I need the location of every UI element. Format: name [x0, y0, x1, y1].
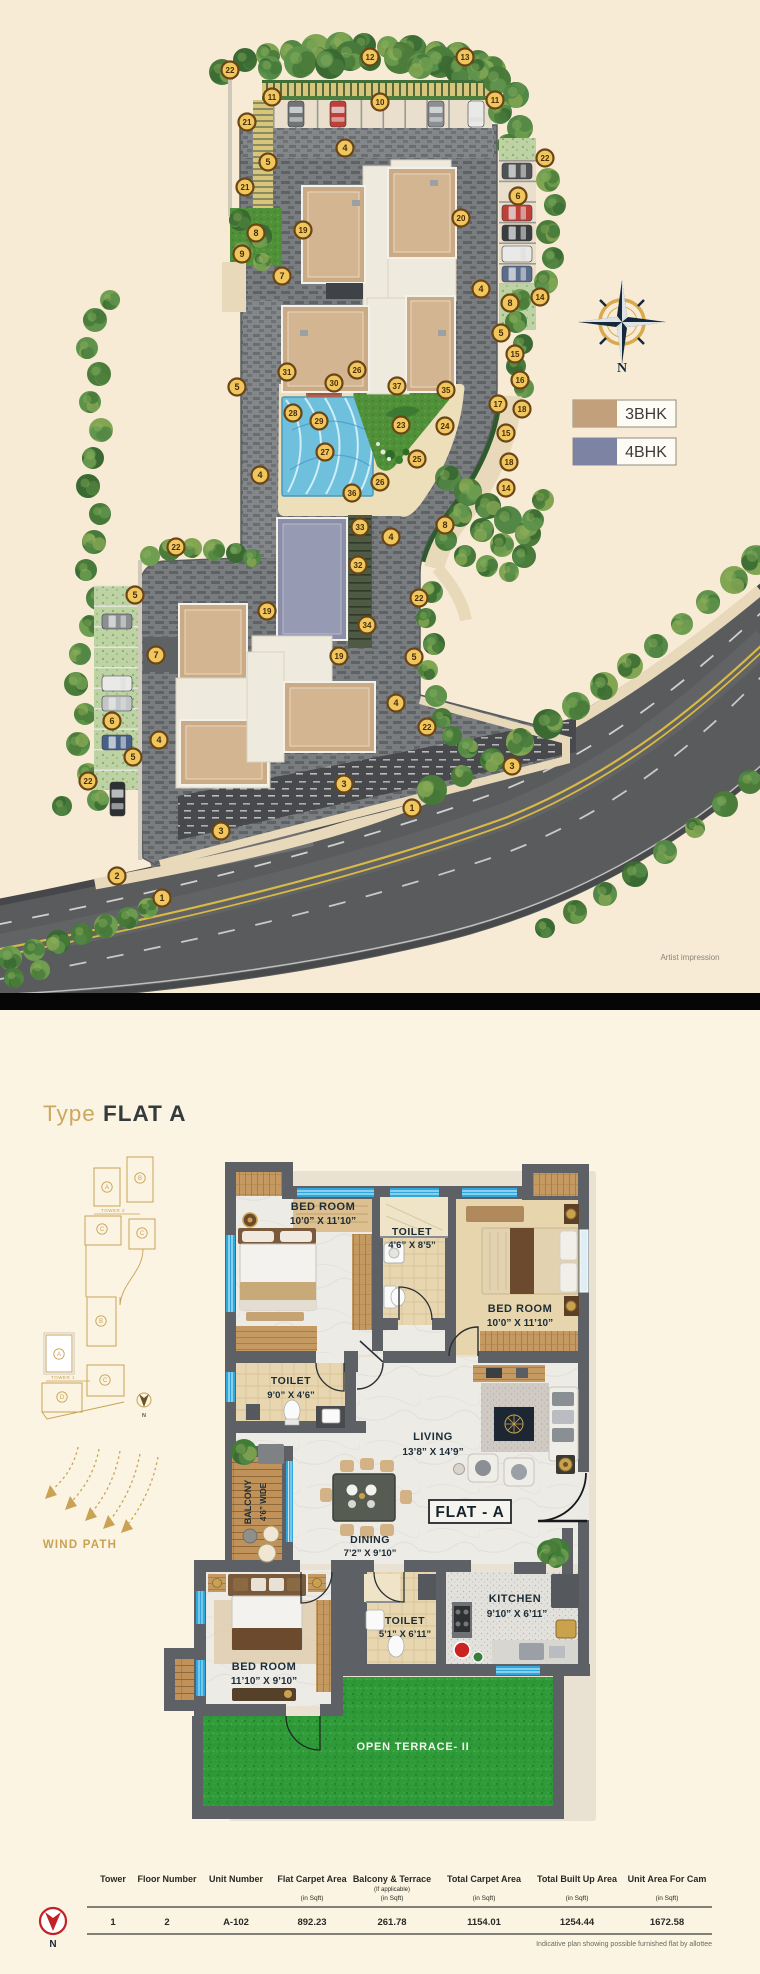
- svg-text:19: 19: [299, 226, 308, 235]
- svg-text:TOILET: TOILET: [385, 1615, 425, 1627]
- svg-text:3BHK: 3BHK: [625, 406, 667, 423]
- svg-text:15: 15: [511, 350, 520, 359]
- svg-text:Tower: Tower: [100, 1874, 126, 1884]
- svg-text:7’2” X 9’10”: 7’2” X 9’10”: [344, 1548, 397, 1559]
- svg-text:TOWER 1: TOWER 1: [51, 1375, 75, 1380]
- svg-text:4’6” WIDE: 4’6” WIDE: [259, 1482, 268, 1521]
- svg-text:4: 4: [478, 284, 483, 294]
- svg-text:4: 4: [393, 698, 398, 708]
- svg-text:16: 16: [516, 376, 525, 385]
- svg-text:18: 18: [518, 405, 527, 414]
- svg-text:28: 28: [289, 409, 298, 418]
- svg-text:1: 1: [110, 1917, 116, 1928]
- svg-text:33: 33: [356, 523, 365, 532]
- svg-text:3: 3: [218, 826, 223, 836]
- svg-text:9: 9: [239, 249, 244, 259]
- svg-text:Indicative plan showing possib: Indicative plan showing possible furnish…: [536, 1941, 712, 1948]
- svg-text:22: 22: [84, 777, 93, 786]
- svg-text:10’0” X 11’10”: 10’0” X 11’10”: [487, 1318, 553, 1329]
- svg-text:31: 31: [283, 368, 292, 377]
- svg-text:24: 24: [441, 422, 450, 431]
- svg-text:5: 5: [234, 382, 239, 392]
- svg-text:4: 4: [156, 735, 161, 745]
- svg-text:10’0” X 11’10”: 10’0” X 11’10”: [290, 1216, 356, 1227]
- svg-text:N: N: [617, 361, 627, 376]
- svg-text:7: 7: [279, 271, 284, 281]
- svg-text:8: 8: [253, 228, 258, 238]
- svg-text:22: 22: [541, 154, 550, 163]
- svg-text:12: 12: [366, 53, 375, 62]
- svg-text:BED ROOM: BED ROOM: [232, 1661, 297, 1673]
- svg-text:(If applicable): (If applicable): [374, 1887, 410, 1893]
- svg-text:C: C: [140, 1231, 145, 1237]
- svg-text:(in Sqft): (in Sqft): [381, 1895, 404, 1902]
- svg-text:N: N: [142, 1413, 146, 1419]
- svg-text:D: D: [60, 1395, 65, 1401]
- svg-text:BED ROOM: BED ROOM: [488, 1303, 553, 1315]
- svg-text:4: 4: [388, 532, 393, 542]
- svg-text:1154.01: 1154.01: [467, 1917, 502, 1928]
- svg-text:11’10” X 9’10”: 11’10” X 9’10”: [231, 1676, 297, 1687]
- svg-text:4BHK: 4BHK: [625, 444, 667, 461]
- svg-text:2: 2: [164, 1917, 169, 1928]
- svg-text:13’8” X 14’9”: 13’8” X 14’9”: [402, 1447, 463, 1458]
- svg-text:FLAT - A: FLAT - A: [435, 1504, 504, 1521]
- svg-text:32: 32: [354, 561, 363, 570]
- svg-text:1: 1: [409, 803, 414, 813]
- svg-text:5: 5: [132, 590, 137, 600]
- svg-text:9’10” X 6’11”: 9’10” X 6’11”: [487, 1609, 548, 1620]
- svg-text:TOILET: TOILET: [271, 1375, 311, 1387]
- svg-text:Floor Number: Floor Number: [137, 1874, 196, 1884]
- svg-text:15: 15: [502, 429, 511, 438]
- svg-text:Unit Area For Cam: Unit Area For Cam: [628, 1874, 707, 1884]
- svg-text:N: N: [49, 1939, 56, 1950]
- svg-text:25: 25: [413, 455, 422, 464]
- svg-text:C: C: [103, 1378, 108, 1384]
- svg-text:1: 1: [159, 893, 164, 903]
- svg-text:5: 5: [498, 328, 503, 338]
- svg-text:7: 7: [153, 650, 158, 660]
- svg-text:20: 20: [457, 214, 466, 223]
- svg-text:19: 19: [335, 652, 344, 661]
- svg-text:10: 10: [376, 98, 385, 107]
- svg-text:Type FLAT A: Type FLAT A: [43, 1101, 187, 1126]
- svg-text:27: 27: [321, 448, 330, 457]
- svg-text:Total Carpet Area: Total Carpet Area: [447, 1874, 522, 1884]
- svg-text:(in Sqft): (in Sqft): [656, 1895, 679, 1902]
- svg-text:B: B: [99, 1319, 103, 1325]
- svg-text:37: 37: [393, 382, 402, 391]
- svg-text:TOWER 2: TOWER 2: [101, 1208, 125, 1213]
- svg-text:30: 30: [330, 379, 339, 388]
- svg-text:8: 8: [507, 298, 512, 308]
- svg-text:(in Sqft): (in Sqft): [566, 1895, 589, 1902]
- svg-text:Flat Carpet Area: Flat Carpet Area: [277, 1874, 347, 1884]
- svg-text:29: 29: [315, 417, 324, 426]
- svg-text:892.23: 892.23: [297, 1917, 326, 1928]
- svg-text:4: 4: [342, 143, 347, 153]
- svg-text:17: 17: [494, 400, 503, 409]
- svg-text:35: 35: [442, 386, 451, 395]
- svg-text:21: 21: [241, 183, 250, 192]
- svg-text:34: 34: [363, 621, 372, 630]
- svg-text:5: 5: [265, 157, 270, 167]
- svg-text:A: A: [105, 1185, 109, 1191]
- svg-text:8: 8: [442, 520, 447, 530]
- svg-text:1254.44: 1254.44: [560, 1917, 595, 1928]
- svg-text:A: A: [57, 1352, 61, 1358]
- svg-text:4: 4: [257, 470, 262, 480]
- svg-text:Artist impression: Artist impression: [660, 953, 719, 962]
- svg-text:9’0” X 4’6”: 9’0” X 4’6”: [267, 1390, 315, 1401]
- svg-text:22: 22: [423, 723, 432, 732]
- svg-text:2: 2: [114, 871, 119, 881]
- svg-text:11: 11: [268, 93, 277, 102]
- svg-text:BALCONY: BALCONY: [243, 1480, 253, 1525]
- svg-text:36: 36: [348, 489, 357, 498]
- svg-text:3: 3: [341, 779, 346, 789]
- svg-text:5: 5: [411, 652, 416, 662]
- svg-text:19: 19: [263, 607, 272, 616]
- svg-text:Balcony & Terrace: Balcony & Terrace: [353, 1874, 431, 1884]
- svg-text:C: C: [100, 1227, 105, 1233]
- svg-text:B: B: [138, 1176, 142, 1182]
- svg-text:DINING: DINING: [350, 1534, 390, 1546]
- svg-text:22: 22: [415, 594, 424, 603]
- svg-text:18: 18: [505, 458, 514, 467]
- svg-text:TOILET: TOILET: [392, 1226, 432, 1238]
- svg-text:26: 26: [376, 478, 385, 487]
- svg-text:22: 22: [172, 543, 181, 552]
- svg-text:WIND PATH: WIND PATH: [43, 1539, 117, 1551]
- svg-text:5’1” X 6’11”: 5’1” X 6’11”: [379, 1629, 432, 1640]
- svg-text:BED ROOM: BED ROOM: [291, 1201, 356, 1213]
- svg-text:OPEN TERRACE- II: OPEN TERRACE- II: [356, 1741, 469, 1753]
- svg-text:5: 5: [130, 752, 135, 762]
- svg-text:(in Sqft): (in Sqft): [473, 1895, 496, 1902]
- svg-text:Unit Number: Unit Number: [209, 1874, 263, 1884]
- svg-text:(in Sqft): (in Sqft): [301, 1895, 324, 1902]
- svg-text:4’6” X 8’5”: 4’6” X 8’5”: [388, 1240, 436, 1251]
- svg-text:A-102: A-102: [223, 1917, 249, 1928]
- svg-text:LIVING: LIVING: [413, 1431, 453, 1443]
- svg-text:13: 13: [461, 53, 470, 62]
- svg-text:11: 11: [491, 96, 500, 105]
- svg-text:KITCHEN: KITCHEN: [489, 1593, 541, 1605]
- svg-text:6: 6: [515, 191, 520, 201]
- svg-text:14: 14: [536, 293, 545, 302]
- svg-text:261.78: 261.78: [377, 1917, 406, 1928]
- svg-text:Total Built Up Area: Total Built Up Area: [537, 1874, 618, 1884]
- svg-text:26: 26: [353, 366, 362, 375]
- svg-text:21: 21: [243, 118, 252, 127]
- svg-text:3: 3: [509, 761, 514, 771]
- svg-text:1672.58: 1672.58: [650, 1917, 684, 1928]
- svg-text:6: 6: [109, 716, 114, 726]
- svg-text:14: 14: [502, 484, 511, 493]
- svg-text:23: 23: [397, 421, 406, 430]
- svg-text:22: 22: [226, 66, 235, 75]
